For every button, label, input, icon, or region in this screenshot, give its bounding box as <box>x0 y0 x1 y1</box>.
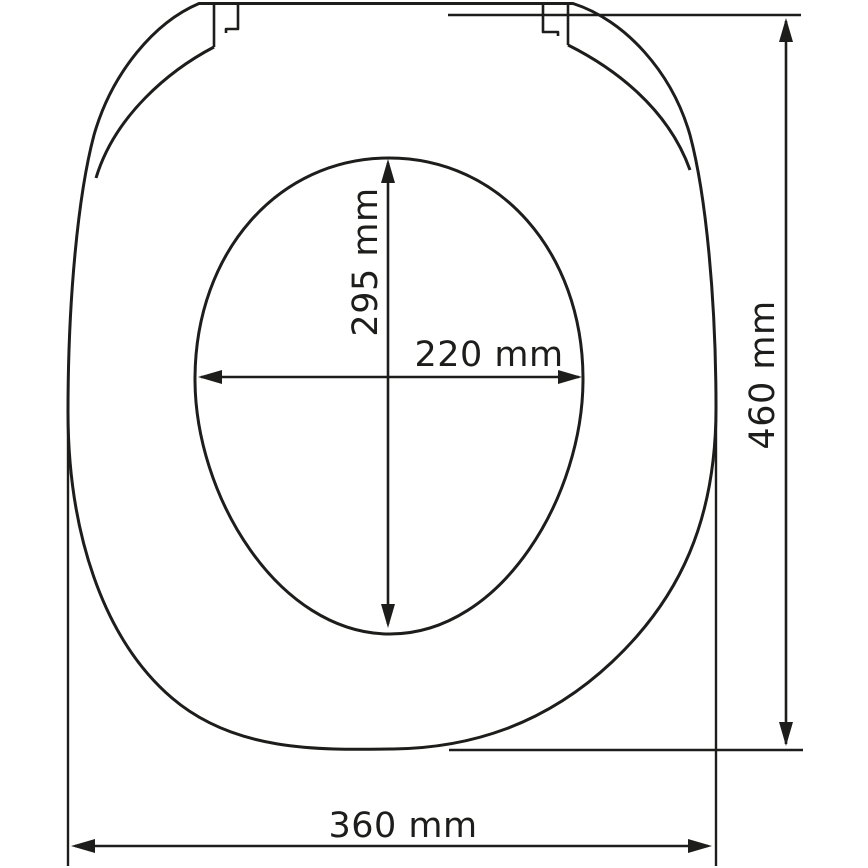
arrowhead-down-icon <box>779 722 793 746</box>
arrowhead-right-icon <box>688 839 712 853</box>
arrowhead-up-icon <box>381 159 395 183</box>
arrowheads <box>71 18 793 853</box>
arrowhead-up-icon <box>779 18 793 42</box>
overall-length-label: 460 mm <box>743 300 783 449</box>
arrowhead-left-icon <box>198 370 222 384</box>
arrowhead-down-icon <box>381 604 395 628</box>
diagram-root: 295 mm 220 mm 460 mm 360 mm <box>68 4 803 867</box>
left-hinge <box>214 4 238 48</box>
right-hinge <box>543 4 568 46</box>
inner-width-label: 220 mm <box>414 335 563 375</box>
seat-back-curve-right <box>568 45 690 170</box>
seat-back-curve-left <box>96 47 214 178</box>
right-hinge-inner-edge <box>543 4 558 37</box>
inner-length-label: 295 mm <box>346 187 386 336</box>
arrowhead-left-icon <box>71 839 95 853</box>
toilet-seat-dimension-diagram: 295 mm 220 mm 460 mm 360 mm <box>0 0 868 868</box>
drawing-canvas: 295 mm 220 mm 460 mm 360 mm <box>0 0 868 868</box>
left-hinge-inner-edge <box>226 4 238 34</box>
overall-width-label: 360 mm <box>328 806 477 846</box>
